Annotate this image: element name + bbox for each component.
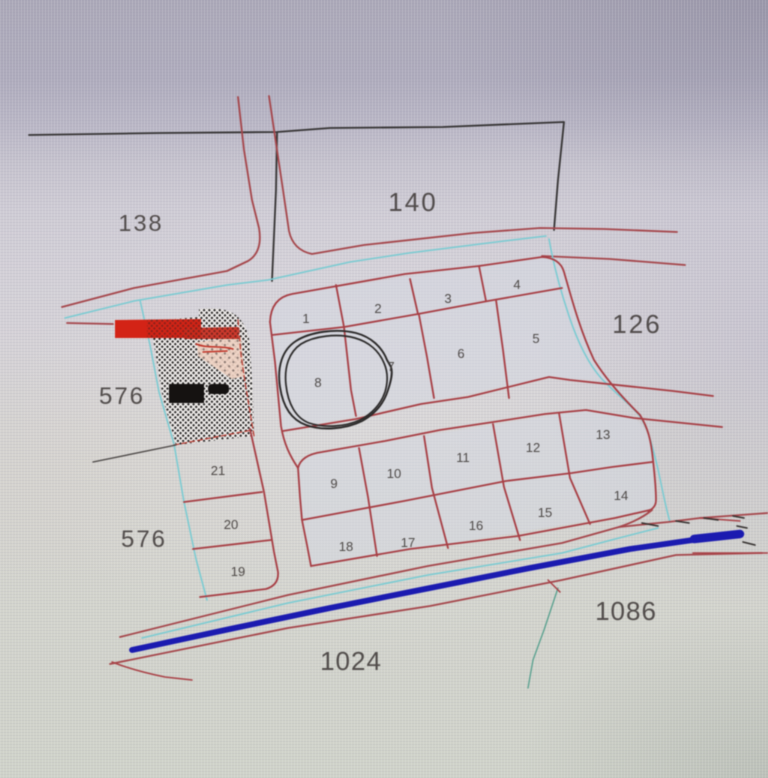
svg-text:20: 20: [224, 517, 238, 532]
svg-text:12: 12: [526, 440, 540, 455]
svg-text:140: 140: [388, 187, 437, 217]
svg-text:3: 3: [444, 291, 451, 306]
svg-text:13: 13: [596, 427, 610, 442]
svg-text:11: 11: [456, 450, 470, 465]
svg-text:576: 576: [99, 383, 145, 410]
svg-text:126: 126: [612, 309, 661, 339]
svg-text:15: 15: [538, 505, 552, 520]
svg-text:14: 14: [614, 488, 628, 503]
svg-text:21: 21: [211, 463, 225, 478]
svg-text:6: 6: [457, 346, 464, 361]
svg-text:5: 5: [532, 331, 539, 346]
svg-text:4: 4: [513, 277, 520, 292]
svg-text:1086: 1086: [595, 596, 657, 626]
svg-text:7: 7: [387, 359, 394, 374]
svg-text:16: 16: [469, 518, 483, 533]
svg-text:1024: 1024: [320, 646, 382, 676]
svg-text:18: 18: [339, 539, 353, 554]
svg-text:2: 2: [374, 301, 381, 316]
svg-text:576: 576: [121, 526, 167, 553]
svg-text:10: 10: [387, 466, 401, 481]
svg-text:1: 1: [302, 311, 309, 326]
svg-text:8: 8: [314, 375, 321, 390]
svg-text:9: 9: [330, 476, 337, 491]
svg-text:138: 138: [118, 210, 163, 236]
svg-text:17: 17: [401, 535, 415, 550]
svg-text:19: 19: [231, 564, 245, 579]
